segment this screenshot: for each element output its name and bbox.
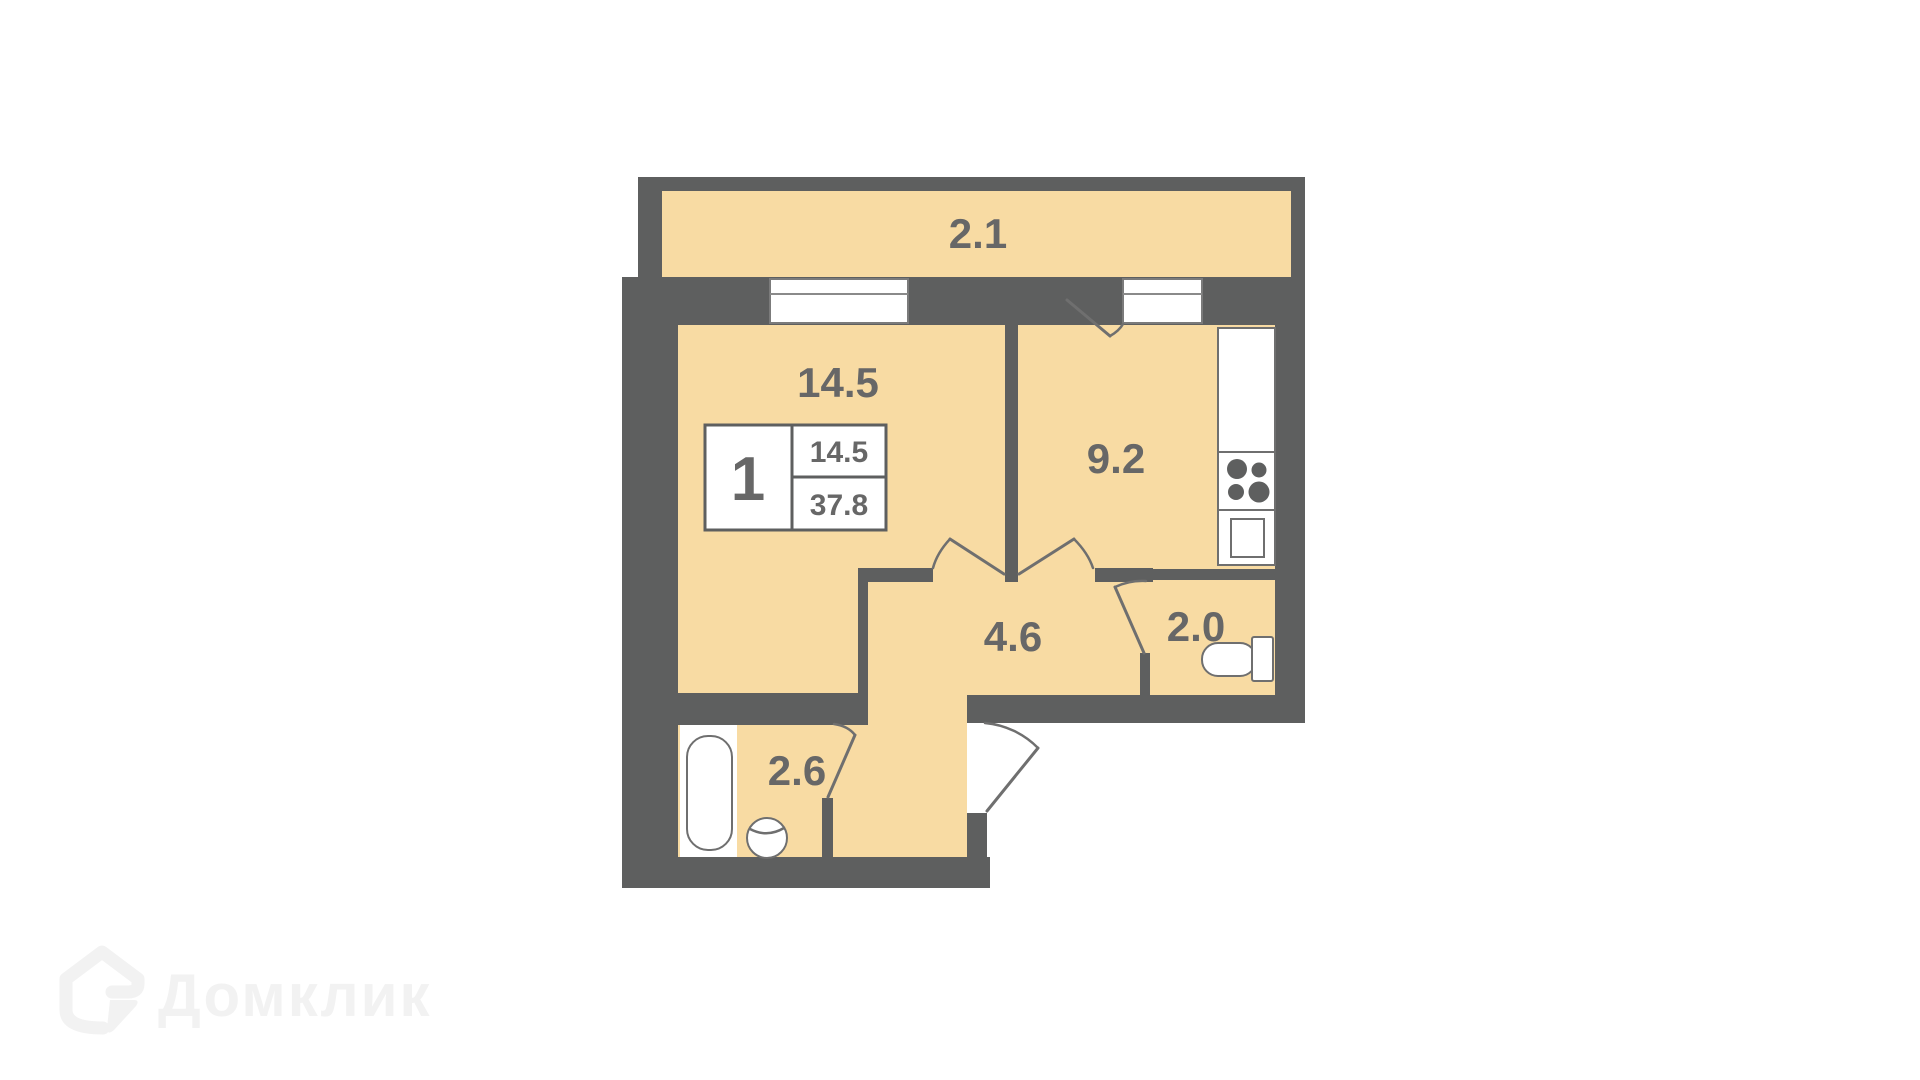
water-heater xyxy=(747,818,787,858)
living-area-label: 14.5 xyxy=(810,436,868,469)
floor-plan-canvas: 2.1 14.5 9.2 4.6 2.0 2.6 1 14.5 37.8 Дом… xyxy=(0,0,1920,1080)
balcony-left-wall xyxy=(638,190,662,277)
living-room-area-label: 14.5 xyxy=(797,359,879,406)
room-hall-vertical-wall xyxy=(858,568,868,725)
balcony-right-wall xyxy=(1291,190,1305,277)
below-toilet-wall xyxy=(967,695,1305,723)
living-room-window xyxy=(770,279,908,323)
burner-large-br xyxy=(1249,482,1270,503)
total-area-label: 37.8 xyxy=(810,489,868,522)
kitchen-area-label: 9.2 xyxy=(1087,435,1145,482)
toilet-door-stub xyxy=(1140,653,1150,695)
kitchen-counter xyxy=(1218,328,1275,452)
rooms-count-label: 1 xyxy=(731,445,765,514)
bathroom-area-label: 2.6 xyxy=(768,747,826,794)
burner-large-tl xyxy=(1227,459,1247,479)
info-box: 1 14.5 37.8 xyxy=(705,425,886,530)
bathtub xyxy=(680,725,737,857)
domclick-wordmark: Домклик xyxy=(158,962,432,1029)
bathroom-top-wall xyxy=(622,693,858,725)
bathroom-door-stub xyxy=(822,798,833,858)
balcony-top-wall xyxy=(638,177,1305,191)
toilet-area-label: 2.0 xyxy=(1167,603,1225,650)
balcony-area-label: 2.1 xyxy=(949,210,1007,257)
kitchen-sink xyxy=(1218,510,1275,565)
domclick-house-icon xyxy=(66,952,138,1033)
burner-small-tr xyxy=(1252,463,1267,478)
floor-plan-page: 2.1 14.5 9.2 4.6 2.0 2.6 1 14.5 37.8 Дом… xyxy=(0,0,1920,1080)
entrance-door-stub xyxy=(967,813,987,858)
left-outer-wall xyxy=(622,277,678,888)
watermark: Домклик xyxy=(66,952,432,1033)
room-kitchen-divider-wall xyxy=(1005,325,1018,582)
kitchen-window xyxy=(1123,279,1202,323)
hall-top-left-wall xyxy=(868,568,933,582)
burner-small-bl xyxy=(1228,484,1244,500)
right-outer-wall xyxy=(1275,325,1305,723)
hallway-area-label: 4.6 xyxy=(984,613,1042,660)
stove xyxy=(1218,452,1275,510)
toilet-top-wall xyxy=(1150,569,1277,580)
entrance-door xyxy=(985,723,1038,811)
bottom-outer-wall xyxy=(622,857,990,888)
